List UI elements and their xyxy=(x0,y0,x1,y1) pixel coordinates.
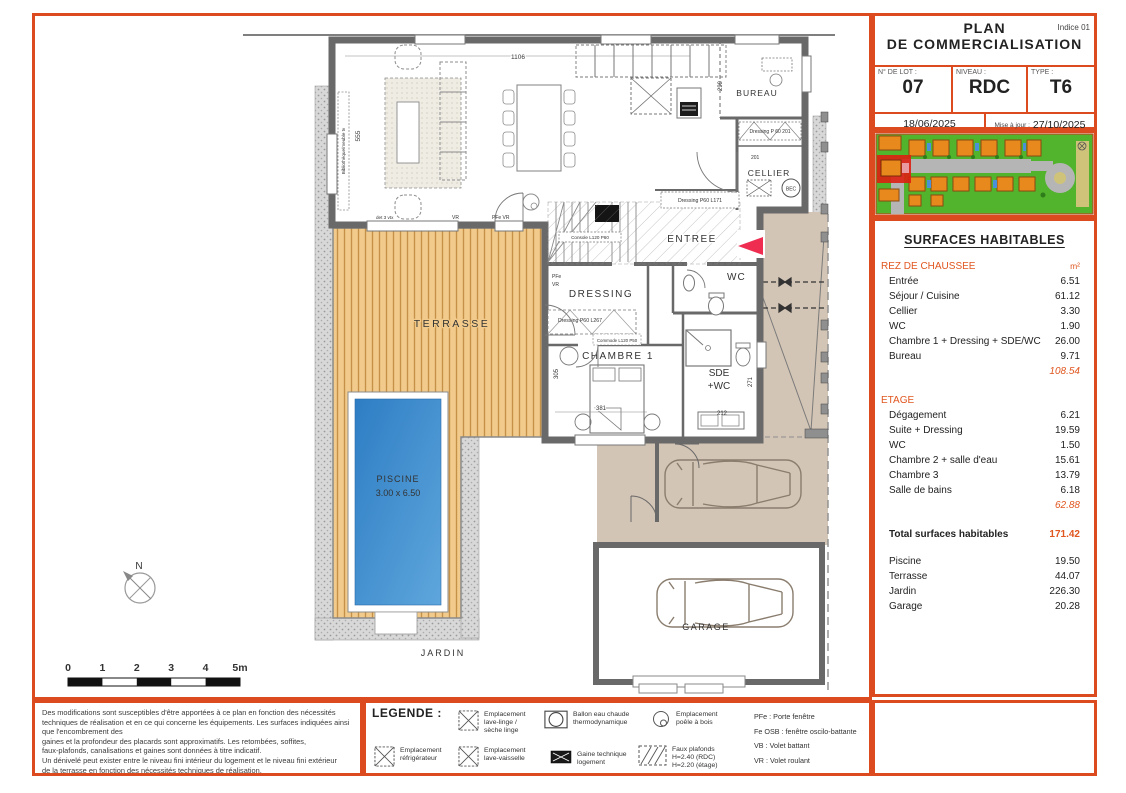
surface-row: Dégagement6.21 xyxy=(875,408,1094,423)
row-value: 20.28 xyxy=(1055,599,1080,614)
row-label: Chambre 1 + Dressing + SDE/WC xyxy=(889,334,1041,349)
unit-label: m² xyxy=(1070,259,1080,274)
legend-item-dishwasher: Emplacementlave-vaisselle xyxy=(458,746,526,767)
closet-l171-label: Dressing P60 L171 xyxy=(678,198,722,204)
technical-duct-icon xyxy=(550,750,572,764)
plan-sheet: { "header": { "indice": "Indice 01", "ti… xyxy=(0,0,1126,793)
row-label: Cellier xyxy=(889,304,917,319)
disclaimer-line: gaines et la profondeur des placards son… xyxy=(42,737,353,747)
surface-row: Chambre 2 + salle d'eau15.61 xyxy=(875,453,1094,468)
dim-1106: 1106 xyxy=(511,54,525,61)
pool-dimensions: 3.00 x 6.50 xyxy=(376,488,421,498)
row-value: 6.51 xyxy=(1061,274,1080,289)
dim-381: 381 xyxy=(596,406,607,412)
pool-label: PISCINE xyxy=(376,474,419,484)
grand-total-row: Total surfaces habitables 171.42 xyxy=(875,527,1094,542)
etage-total: 62.88 xyxy=(875,498,1094,513)
legend-label: poêle à bois xyxy=(676,719,718,727)
row-label: WC xyxy=(889,319,906,334)
level-value: RDC xyxy=(953,77,1026,99)
legend-label: réfrigérateur xyxy=(400,755,442,763)
garage-label: GARAGE xyxy=(682,622,730,632)
garden-label: JARDIN xyxy=(421,648,466,658)
surface-row: Entrée6.51 xyxy=(875,274,1094,289)
row-value: 9.71 xyxy=(1061,349,1080,364)
north-compass: N xyxy=(123,561,155,603)
label-201: 201 xyxy=(751,155,760,161)
disclaimer-line: faux-plafonds, canalisations et gaines s… xyxy=(42,746,353,756)
row-value: 15.61 xyxy=(1055,453,1080,468)
row-value: 1.90 xyxy=(1061,319,1080,334)
pool-steps xyxy=(375,612,417,634)
legend-item-water-heater: Ballon eau chaudethermodynamique xyxy=(544,710,629,729)
pfe-label: PFe xyxy=(552,274,561,280)
surfaces-panel: SURFACES HABITABLES REZ DE CHAUSSEE m² E… xyxy=(872,218,1097,697)
sheet-title-line2: DE COMMERCIALISATION xyxy=(875,36,1094,52)
disclaimer-panel: Des modifications sont susceptibles d'êt… xyxy=(32,700,363,776)
legend-label: logement xyxy=(577,759,627,767)
grand-total-value: 171.42 xyxy=(1049,527,1080,542)
title-block: Indice 01 PLAN DE COMMERCIALISATION N° D… xyxy=(872,13,1097,130)
disclaimer-line: que l'encombrement des xyxy=(42,727,353,737)
revision-index: Indice 01 xyxy=(1058,23,1090,32)
pfevr-label: PFe VR xyxy=(492,215,510,221)
pool: PISCINE 3.00 x 6.50 xyxy=(348,392,448,634)
legend-label: H=2.40 (RDC) xyxy=(672,754,718,762)
legend-item-false-ceiling: Faux plafondsH=2.40 (RDC)H=2.20 (étage) xyxy=(638,745,718,771)
row-label: Jardin xyxy=(889,584,916,599)
legend-label: lave-vaisselle xyxy=(484,755,526,763)
row-label: Piscine xyxy=(889,554,921,569)
surface-row: Chambre 313.79 xyxy=(875,468,1094,483)
legend-item-fridge: Emplacementréfrigérateur xyxy=(374,746,442,767)
legend-item-duct: Gaine techniquelogement xyxy=(550,750,627,767)
dim-299: 299 xyxy=(718,80,724,91)
lot-number: 07 xyxy=(875,77,951,99)
scale-tick: 0 xyxy=(65,662,71,674)
washer-icon xyxy=(458,710,479,731)
office-label: BUREAU xyxy=(736,88,777,98)
legend-label: Emplacement xyxy=(484,711,526,719)
row-label: Bureau xyxy=(889,349,921,364)
abbr-vb: VB : Volet battant xyxy=(754,739,857,754)
commode-label: Commode L120 P50 xyxy=(597,338,638,343)
row-label: Garage xyxy=(889,599,922,614)
dim-271: 271 xyxy=(748,376,754,387)
rdc-total: 108.54 xyxy=(875,364,1094,379)
empty-box xyxy=(872,700,1097,776)
update-label: Mise à jour : xyxy=(995,122,1030,129)
legend-label: lave-linge / xyxy=(484,719,526,727)
dim-555: 555 xyxy=(355,130,362,141)
abbr-feosb: Fe OSB : fenêtre oscilo-battante xyxy=(754,725,857,740)
wc-toilet xyxy=(709,297,724,315)
row-value: 19.59 xyxy=(1055,423,1080,438)
row-label: Chambre 2 + salle d'eau xyxy=(889,453,997,468)
row-value: 226.30 xyxy=(1049,584,1080,599)
fridge-icon xyxy=(374,746,395,767)
sde-label-1: SDE xyxy=(709,368,730,379)
row-label: WC xyxy=(889,438,906,453)
scale-tick: 4 xyxy=(203,662,209,674)
surfaces-title: SURFACES HABITABLES xyxy=(875,233,1094,247)
rug xyxy=(385,78,461,188)
garage: GARAGE xyxy=(596,545,822,693)
siteplan-panel xyxy=(872,130,1097,218)
title-header: Indice 01 PLAN DE COMMERCIALISATION xyxy=(875,21,1094,67)
surface-row: WC1.50 xyxy=(875,438,1094,453)
bookcase-label: Bibliothèque/meuble tv xyxy=(341,127,346,174)
coffee-table xyxy=(397,102,419,163)
site-plan-thumbnail xyxy=(875,133,1094,215)
legend-panel: LEGENDE : Emplacementlave-linge /sèche l… xyxy=(363,700,872,776)
scale-tick: 2 xyxy=(134,662,140,674)
legend-label: Gaine technique xyxy=(577,751,627,759)
row-label: Séjour / Cuisine xyxy=(889,289,960,304)
legend-label: Ballon eau chaude xyxy=(573,711,629,719)
rdc-section-header: REZ DE CHAUSSEE m² xyxy=(875,259,1094,274)
surface-row: Bureau9.71 xyxy=(875,349,1094,364)
rdc-label: REZ DE CHAUSSEE xyxy=(881,259,975,274)
row-value: 19.50 xyxy=(1055,554,1080,569)
legend-label: Emplacement xyxy=(484,747,526,755)
legend-item-wood-stove: Emplacementpoêle à bois xyxy=(651,710,718,730)
sde-label-2: +WC xyxy=(708,381,731,392)
wc-sink xyxy=(684,275,695,291)
surface-row: Séjour / Cuisine61.12 xyxy=(875,289,1094,304)
entry-stairs: ENTREE Dressing P60 L171 xyxy=(548,192,740,264)
closet-l267-label: Dressing P60 L267 xyxy=(558,318,602,324)
surface-row: Salle de bains6.18 xyxy=(875,483,1094,498)
bec-label: BEC xyxy=(786,187,797,193)
row-label: Terrasse xyxy=(889,569,927,584)
legend-title: LEGENDE : xyxy=(372,706,442,720)
row-label: Entrée xyxy=(889,274,918,289)
disclaimer-line: techniques de réalisation et en ce qui c… xyxy=(42,718,353,728)
surface-row: Chambre 1 + Dressing + SDE/WC26.00 xyxy=(875,334,1094,349)
console-label: Console L120 P60 xyxy=(571,235,609,240)
surface-row: Cellier3.30 xyxy=(875,304,1094,319)
dim-212: 212 xyxy=(717,411,728,417)
disclaimer-line: Des modifications sont susceptibles d'êt… xyxy=(42,708,353,718)
legend-label: thermodynamique xyxy=(573,719,629,727)
bedroom1-label: CHAMBRE 1 xyxy=(582,351,654,362)
row-label: Salle de bains xyxy=(889,483,952,498)
row-value: 44.07 xyxy=(1055,569,1080,584)
row-value: 13.79 xyxy=(1055,468,1080,483)
entry-label: ENTREE xyxy=(667,234,717,245)
row-label: Dégagement xyxy=(889,408,946,423)
dim-305: 305 xyxy=(554,368,560,379)
highlighted-lot xyxy=(877,155,911,183)
abbr-pfe: PFe : Porte fenêtre xyxy=(754,710,857,725)
north-label: N xyxy=(135,561,142,572)
level-label: NIVEAU : xyxy=(953,67,1026,76)
water-heater-icon xyxy=(544,710,568,729)
vtx-label: det 3 vtx xyxy=(376,215,394,220)
row-value: 6.21 xyxy=(1061,408,1080,423)
lot-cell: N° DE LOT : 07 xyxy=(875,67,953,112)
terrace-label: TERRASSE xyxy=(414,318,491,330)
legend-abbreviations: PFe : Porte fenêtre Fe OSB : fenêtre osc… xyxy=(754,710,857,768)
closet-201-label: Dressing P 60 201 xyxy=(749,129,790,135)
surface-row: Terrasse44.07 xyxy=(875,569,1094,584)
sliding-door xyxy=(367,221,458,231)
dressing-label: DRESSING xyxy=(569,289,633,300)
legend-label: Emplacement xyxy=(400,747,442,755)
legend-label: Emplacement xyxy=(676,711,718,719)
level-cell: NIVEAU : RDC xyxy=(953,67,1028,112)
row-value: 3.30 xyxy=(1061,304,1080,319)
wc-label: WC xyxy=(727,272,746,283)
dishwasher-icon xyxy=(458,746,479,767)
scale-bar: 0 1 2 3 4 5m xyxy=(65,662,248,686)
legend-item-washer: Emplacementlave-linge /sèche linge xyxy=(458,710,526,736)
row-value: 1.50 xyxy=(1061,438,1080,453)
type-label: TYPE : xyxy=(1028,67,1094,76)
surface-row: WC1.90 xyxy=(875,319,1094,334)
vr-label-dressing: VR xyxy=(552,282,559,288)
legend-label: H=2.20 (étage) xyxy=(672,762,718,770)
etage-label: ETAGE xyxy=(881,393,914,408)
abbr-vr: VR : Volet roulant xyxy=(754,754,857,769)
row-value: 61.12 xyxy=(1055,289,1080,304)
scale-tick: 1 xyxy=(99,662,105,674)
type-value: T6 xyxy=(1028,77,1094,99)
disclaimer-line: Un dénivelé peut exister entre le niveau… xyxy=(42,756,353,766)
floor-plan-panel: TERRASSE PISCINE 3.00 x 6.50 JARDIN GARA… xyxy=(32,13,872,700)
grand-total-label: Total surfaces habitables xyxy=(889,527,1008,542)
legend-label: Faux plafonds xyxy=(672,746,718,754)
row-value: 6.18 xyxy=(1061,483,1080,498)
legend-label: sèche linge xyxy=(484,727,526,735)
row-label: Suite + Dressing xyxy=(889,423,963,438)
row-label: Chambre 3 xyxy=(889,468,938,483)
lot-label: N° DE LOT : xyxy=(875,67,951,76)
surface-row: Piscine19.50 xyxy=(875,554,1094,569)
scale-tick: 5m xyxy=(232,662,247,674)
type-cell: TYPE : T6 xyxy=(1028,67,1094,112)
etage-section-header: ETAGE xyxy=(875,393,1094,408)
surface-row: Jardin226.30 xyxy=(875,584,1094,599)
scale-tick: 3 xyxy=(168,662,174,674)
vr-label: VR xyxy=(452,215,459,221)
false-ceiling-icon xyxy=(638,745,667,766)
floor-plan: TERRASSE PISCINE 3.00 x 6.50 JARDIN GARA… xyxy=(35,16,869,697)
cellar-label: CELLIER xyxy=(748,168,790,178)
disclaimer-line: de la terrasse en fonction des nécessité… xyxy=(42,766,353,776)
surface-row: Suite + Dressing19.59 xyxy=(875,423,1094,438)
wood-stove-icon xyxy=(651,710,671,730)
surface-row: Garage20.28 xyxy=(875,599,1094,614)
row-value: 26.00 xyxy=(1055,334,1080,349)
